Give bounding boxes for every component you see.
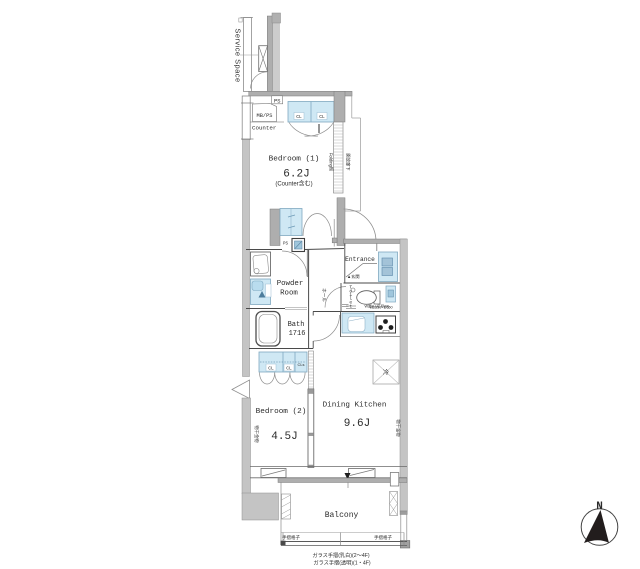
svg-text:Balcony: Balcony	[325, 511, 359, 520]
svg-text:CLs: CLs	[297, 362, 304, 367]
svg-text:Dining Kitchen: Dining Kitchen	[323, 402, 387, 410]
svg-text:ガラス手摺(透明)(1・4F): ガラス手摺(透明)(1・4F)	[313, 559, 371, 567]
svg-text:CL: CL	[286, 366, 292, 372]
svg-text:Entrance: Entrance	[345, 256, 375, 263]
svg-text:N: N	[596, 501, 603, 513]
svg-text:Room: Room	[280, 289, 298, 297]
svg-text:手摺格子: 手摺格子	[374, 534, 392, 541]
svg-text:手摺格子: 手摺格子	[282, 534, 300, 541]
svg-text:冷: 冷	[383, 369, 389, 377]
svg-text:Folding框: Folding框	[328, 153, 335, 172]
svg-text:W2550×D650: W2550×D650	[369, 306, 392, 310]
svg-text:MB/PS: MB/PS	[257, 113, 273, 119]
svg-text:ホール: ホール	[322, 288, 327, 302]
svg-text:Powder: Powder	[277, 280, 304, 288]
svg-text:CL: CL	[268, 366, 274, 372]
svg-text:Bedroom (1): Bedroom (1)	[269, 156, 320, 164]
svg-text:4.5J: 4.5J	[271, 431, 297, 443]
svg-text:6.2J: 6.2J	[283, 169, 309, 181]
svg-text:PS: PS	[274, 98, 280, 104]
svg-text:PS: PS	[283, 243, 289, 247]
svg-text:Bath: Bath	[288, 321, 305, 329]
svg-text:ガラス手摺(乳白)(2〜4F): ガラス手摺(乳白)(2〜4F)	[312, 551, 370, 559]
svg-text:Bedroom (2): Bedroom (2)	[256, 408, 307, 416]
svg-text:(Counter含む): (Counter含む)	[275, 180, 312, 188]
svg-text:CL: CL	[296, 114, 302, 120]
svg-text:▲玄関: ▲玄関	[347, 273, 360, 280]
svg-text:Service Space: Service Space	[234, 28, 243, 82]
svg-text:開放廊下: 開放廊下	[345, 153, 352, 171]
svg-text:Counter: Counter	[252, 125, 276, 132]
svg-text:1716: 1716	[289, 330, 306, 338]
svg-text:CL: CL	[319, 114, 325, 120]
svg-text:物干金物: 物干金物	[395, 419, 402, 437]
svg-text:9.6J: 9.6J	[344, 418, 370, 430]
svg-text:物干金物: 物干金物	[253, 425, 260, 443]
